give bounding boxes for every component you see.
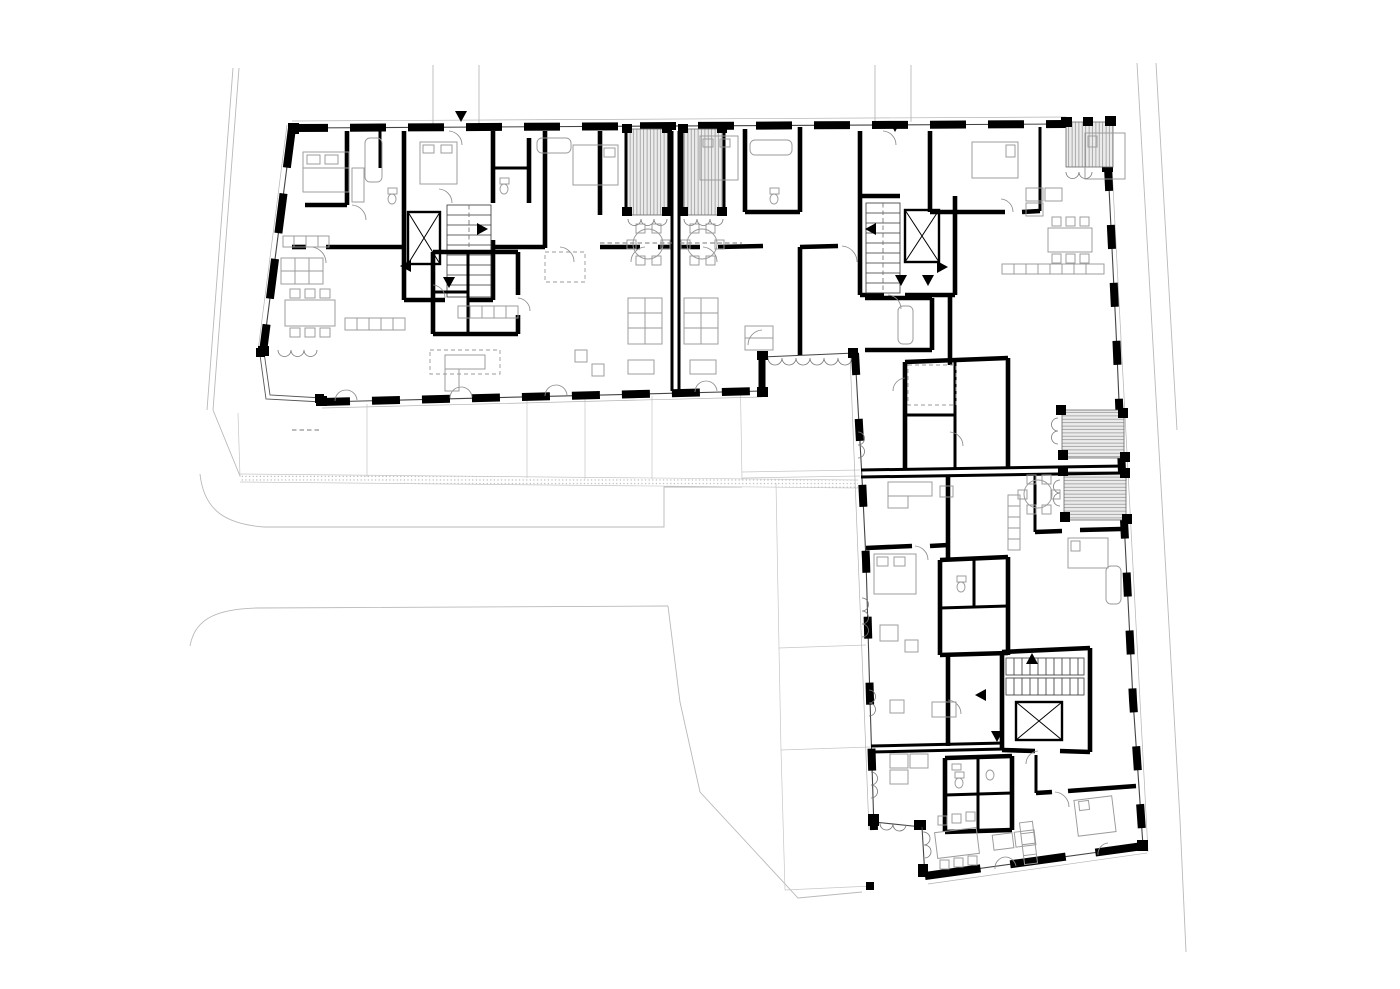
terrace-wall-trace	[742, 470, 860, 472]
west-boundary	[207, 68, 233, 410]
corner-pier	[1137, 840, 1148, 851]
terrace-post	[866, 882, 874, 890]
terrace-wall-trace	[742, 476, 860, 478]
wall-pier	[868, 814, 879, 826]
floor-plan-canvas: architectural floor plan	[0, 0, 1400, 989]
corner-pier	[848, 348, 858, 358]
corner-pier	[288, 123, 299, 134]
floor-plan-stage: architectural floor plan	[0, 0, 1400, 989]
balcony-post	[315, 394, 324, 403]
loggia-east-1	[1052, 405, 1130, 462]
parcel-line-southeast	[668, 606, 862, 898]
terrace-edge-strip	[240, 474, 858, 488]
terrace-outline	[781, 750, 872, 890]
building	[256, 111, 1148, 884]
garden-terraces	[238, 362, 874, 890]
loggia-north-1	[622, 124, 672, 226]
west-boundary	[213, 68, 239, 410]
wall-pier	[914, 820, 926, 830]
accordion-door	[768, 358, 852, 365]
terrace-outline	[776, 483, 866, 648]
corner-pier	[757, 351, 768, 360]
west-boundary	[213, 410, 240, 476]
page: { "diagram": { "kind": "architectural fl…	[0, 0, 1400, 989]
curb-line-lower	[190, 606, 668, 646]
terrace-divider	[238, 413, 240, 477]
parcel-line-diagonal	[1156, 63, 1177, 430]
street-curb-lines	[190, 474, 862, 898]
corner-pier	[757, 387, 768, 397]
balcony-post	[256, 348, 265, 357]
terrace-outline	[779, 648, 870, 750]
